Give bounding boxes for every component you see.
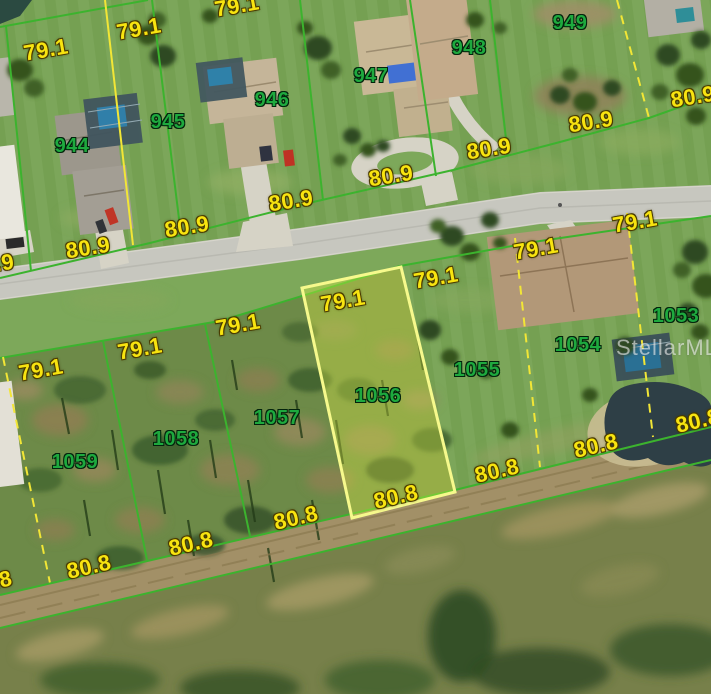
car-red-946 xyxy=(283,149,295,166)
aerial-parcel-map: 79.1 79.1 79.1 80.9 80.9 80.9 80.9 80.9 … xyxy=(0,0,711,694)
car-dark-946 xyxy=(259,145,273,161)
aerial-photo-layer xyxy=(0,0,711,694)
blue-tarp xyxy=(387,62,417,83)
stellar-mls-watermark: StellarMLS xyxy=(616,335,711,361)
